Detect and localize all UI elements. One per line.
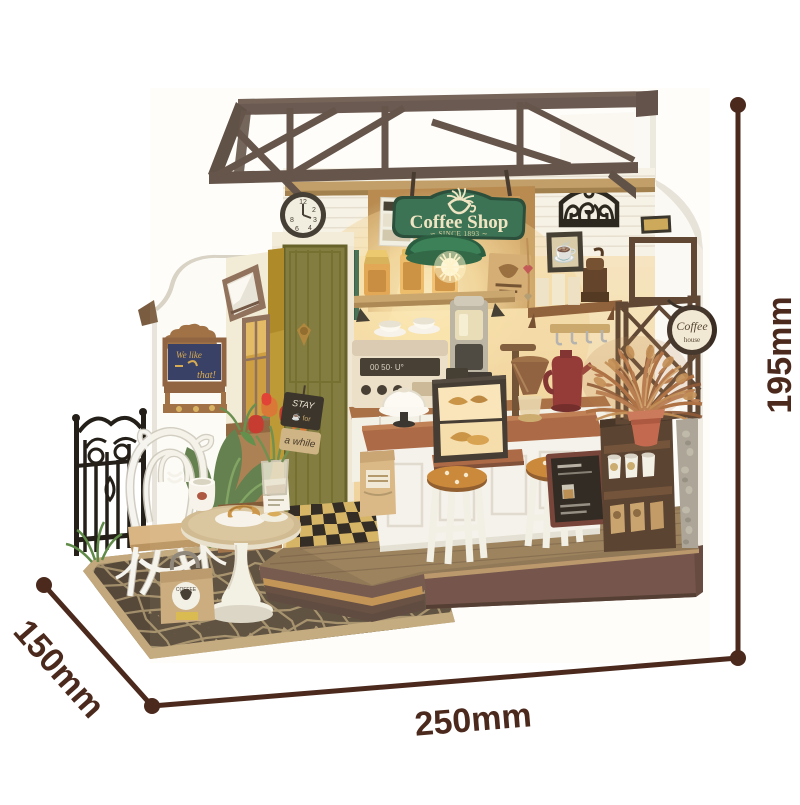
svg-text:195mm: 195mm <box>761 296 799 413</box>
